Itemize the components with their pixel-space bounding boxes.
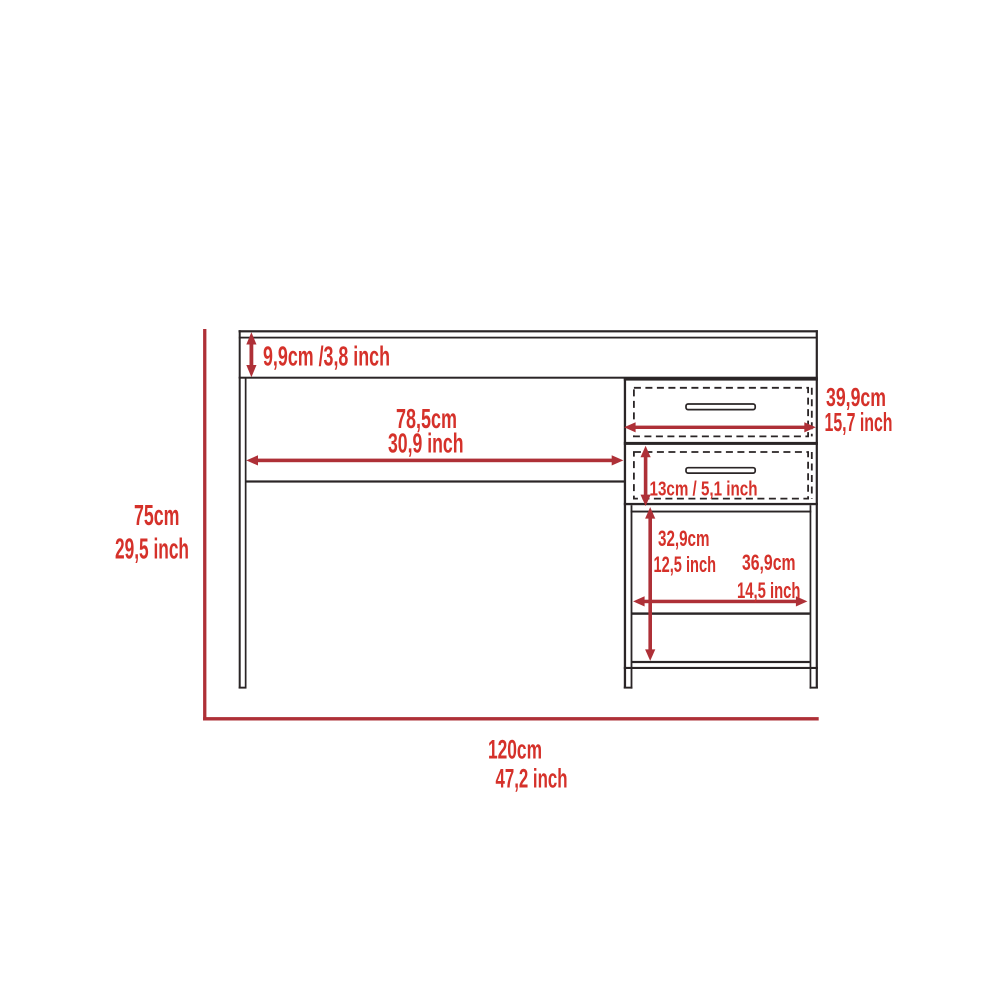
svg-text:12,5 inch: 12,5 inch — [654, 552, 717, 577]
svg-text:30,9 inch: 30,9 inch — [388, 428, 464, 459]
svg-text:13cm / 5,1 inch: 13cm / 5,1 inch — [650, 478, 758, 500]
svg-text:29,5 inch: 29,5 inch — [115, 534, 189, 566]
svg-text:15,7 inch: 15,7 inch — [825, 407, 893, 437]
svg-text:32,9cm: 32,9cm — [658, 526, 710, 551]
svg-text:47,2 inch: 47,2 inch — [496, 764, 568, 794]
svg-text:14,5 inch: 14,5 inch — [737, 578, 801, 603]
svg-text:36,9cm: 36,9cm — [742, 550, 796, 575]
svg-text:120cm: 120cm — [488, 735, 542, 765]
svg-text:9,9cm /3,8 inch: 9,9cm /3,8 inch — [263, 340, 390, 371]
svg-text:75cm: 75cm — [134, 500, 180, 532]
